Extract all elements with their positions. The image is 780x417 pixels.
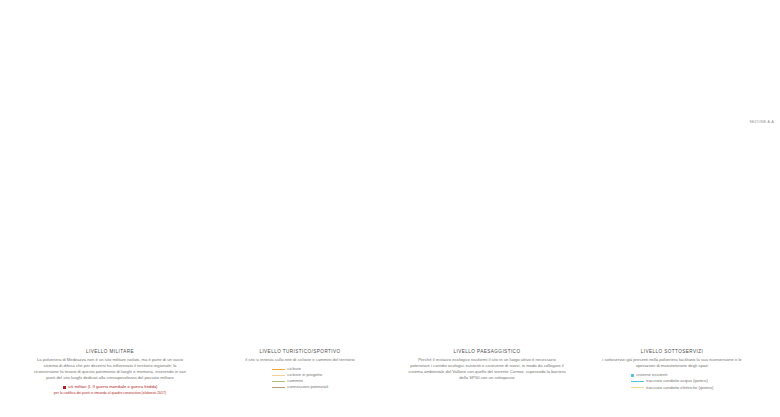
- military-sites-swatch-icon: [63, 386, 66, 389]
- caption-title-paesaggistico: LIVELLO PAESAGGISTICO: [402, 349, 572, 354]
- caption-militare: LIVELLO MILITARE La polveriera di Medeaz…: [25, 349, 195, 395]
- caption-sottoservizi: LIVELLO SOTTOSERVIZI i sottoservizi già …: [587, 349, 757, 392]
- legend-turistico: ciclovie ciclovie in progetto cammini co…: [272, 365, 329, 389]
- map-paesaggistico: [410, 191, 564, 345]
- map-sottoservizi: [594, 191, 748, 345]
- caption-body-turistico: il sito si innesta sulla rete di ciclovi…: [215, 357, 385, 363]
- walking-paths-swatch-icon: [272, 381, 285, 382]
- legend-label-cycleways-planned: ciclovie in progetto: [287, 373, 322, 378]
- caption-title-sottoservizi: LIVELLO SOTTOSERVIZI: [587, 349, 757, 354]
- legend-label-cisterns: cisterne esistenti: [636, 373, 667, 378]
- cycleway-planned-swatch-icon: [272, 375, 285, 376]
- map-turistico: [223, 191, 377, 345]
- legend-label-electric-lines: tracciato condotte elettriche (ipotesi): [646, 386, 713, 391]
- caption-title-turistico: LIVELLO TURISTICO/SPORTIVO: [215, 349, 385, 354]
- legend-label-military-sites: siti militari (I, II guerra mondiale e g…: [68, 385, 157, 390]
- cisterns-swatch-icon: [631, 374, 634, 377]
- legend-militare: siti militari (I, II guerra mondiale e g…: [25, 385, 195, 395]
- cycleway-swatch-icon: [272, 369, 285, 370]
- section-label: SEZIONE A-A: [749, 120, 774, 124]
- presentation-board: SEZIONE A-A LIVELLO MILITARE La polverie…: [0, 0, 780, 417]
- caption-body-militare: La polveriera di Medeazza non è un sito …: [25, 357, 195, 382]
- map-militare: [33, 191, 187, 345]
- water-pipes-swatch-icon: [631, 381, 644, 382]
- electric-lines-swatch-icon: [631, 387, 644, 388]
- legend-label-water-pipes: tracciato condotte acqua (ipotesi): [646, 379, 708, 384]
- caption-turistico: LIVELLO TURISTICO/SPORTIVO il sito si in…: [215, 349, 385, 392]
- legend-sottoservizi: cisterne esistenti tracciato condotte ac…: [631, 372, 714, 390]
- caption-body-paesaggistico: Perché il restauro ecologico trasformi i…: [402, 357, 572, 382]
- caption-body-sottoservizi: i sottoservizi già presenti nella polver…: [587, 357, 757, 370]
- legend-note-military: per la codifica dei punti si rimanda al …: [25, 391, 195, 395]
- potential-connections-swatch-icon: [272, 387, 285, 388]
- caption-paesaggistico: LIVELLO PAESAGGISTICO Perché il restauro…: [402, 349, 572, 382]
- legend-label-potential-connections: connessioni potenziali: [287, 385, 328, 390]
- section-drawing: [0, 0, 780, 136]
- caption-title-militare: LIVELLO MILITARE: [25, 349, 195, 354]
- legend-label-cycleways: ciclovie: [287, 367, 301, 372]
- legend-label-walking-paths: cammini: [287, 379, 303, 384]
